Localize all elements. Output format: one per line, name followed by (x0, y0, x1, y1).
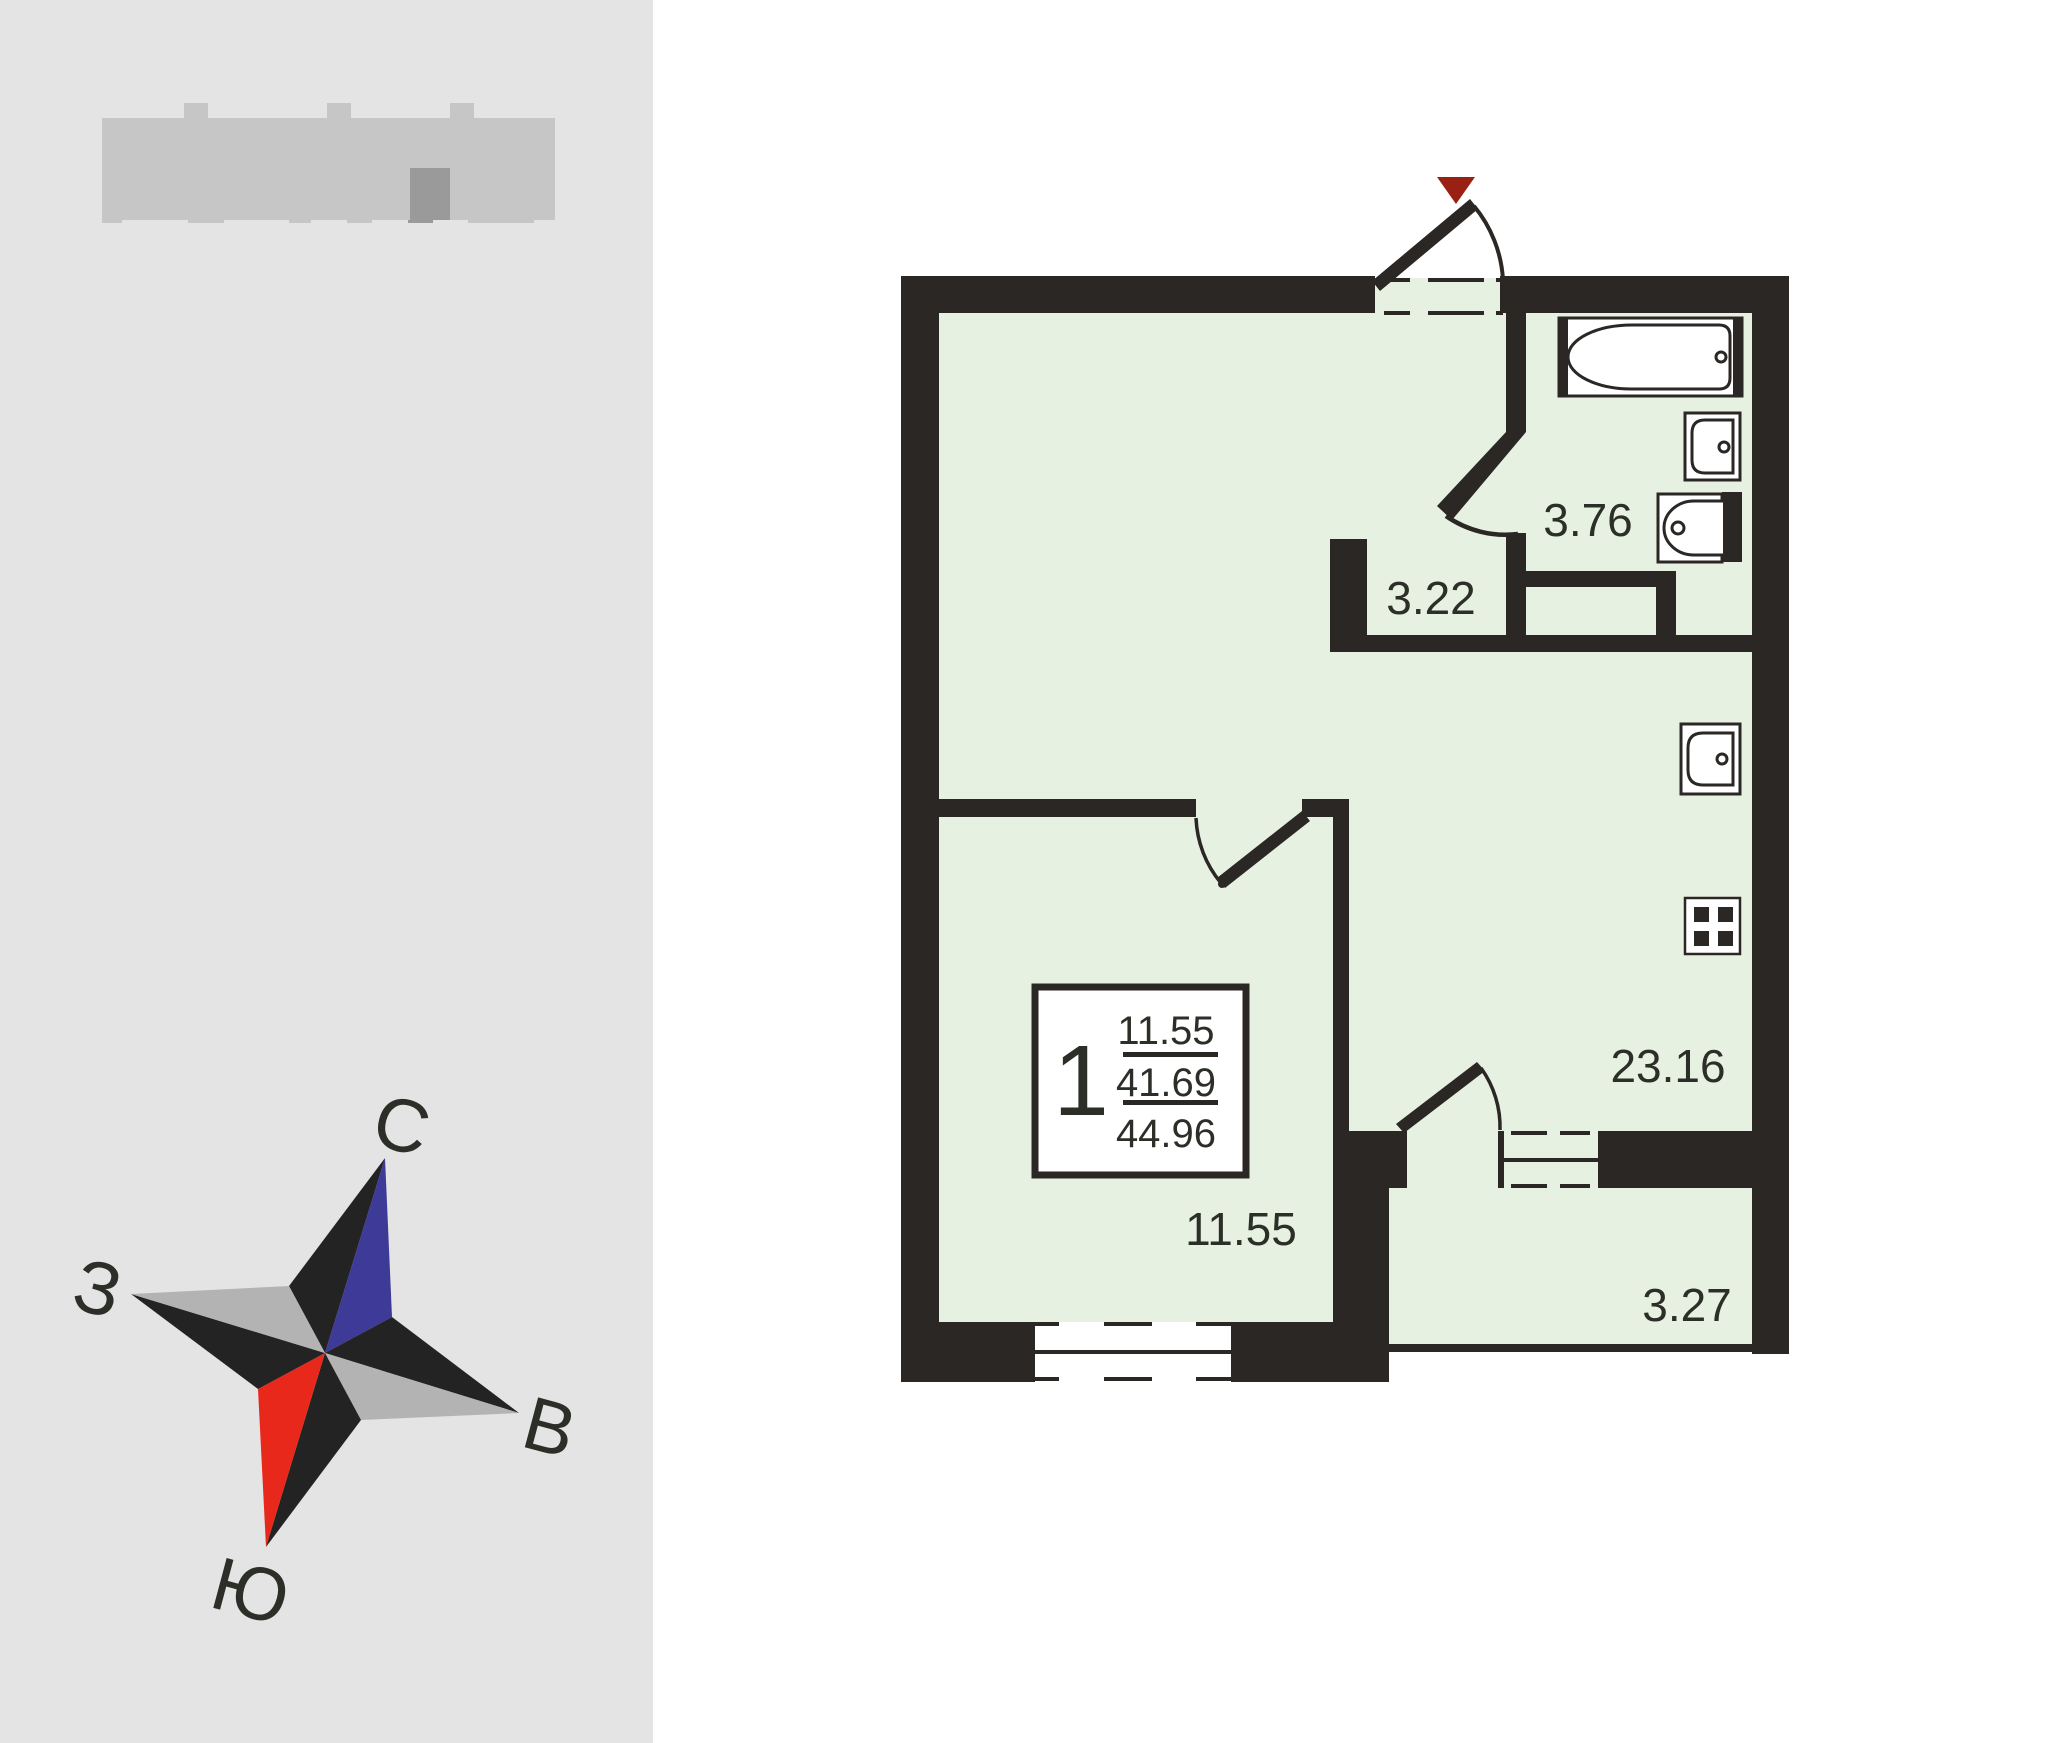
svg-text:44.96: 44.96 (1116, 1112, 1216, 1156)
svg-text:23.16: 23.16 (1610, 1040, 1725, 1092)
svg-text:1: 1 (1053, 1025, 1109, 1137)
svg-text:41.69: 41.69 (1116, 1061, 1216, 1105)
svg-text:11.55: 11.55 (1117, 1009, 1214, 1053)
svg-text:11.55: 11.55 (1185, 1203, 1297, 1255)
svg-text:3.27: 3.27 (1642, 1279, 1732, 1331)
svg-text:3.22: 3.22 (1386, 572, 1476, 624)
svg-text:3.76: 3.76 (1543, 494, 1633, 546)
